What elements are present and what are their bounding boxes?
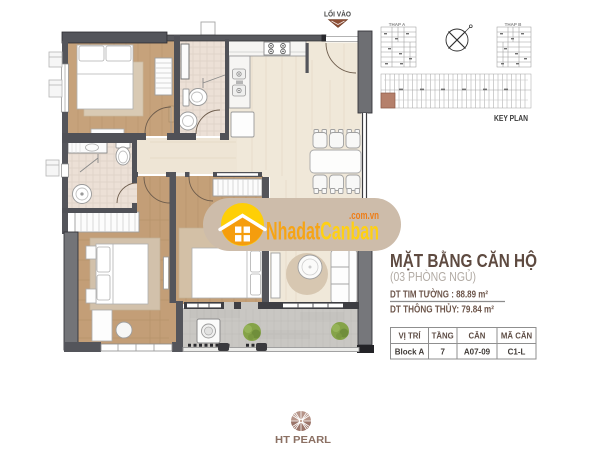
svg-text:Block A: Block A <box>395 348 425 357</box>
svg-text:C1-L: C1-L <box>508 348 526 357</box>
svg-text:CĂN: CĂN <box>469 332 486 341</box>
svg-text:A07-09: A07-09 <box>464 348 491 357</box>
svg-text:VỊ TRÍ: VỊ TRÍ <box>398 332 421 341</box>
svg-text:THAP B: THAP B <box>505 22 522 27</box>
svg-text:DT THÔNG THỦY: 79.84 m²: DT THÔNG THỦY: 79.84 m² <box>390 303 495 316</box>
svg-text:HT PEARL: HT PEARL <box>275 434 332 446</box>
svg-text:.com.vn: .com.vn <box>349 210 379 222</box>
svg-text:KEY PLAN: KEY PLAN <box>494 114 528 123</box>
svg-text:DT TIM TƯỜNG : 88.89 m²: DT TIM TƯỜNG : 88.89 m² <box>390 288 489 301</box>
svg-text:THAP A: THAP A <box>389 22 406 27</box>
svg-text:(03 PHÒNG NGỦ): (03 PHÒNG NGỦ) <box>390 269 476 284</box>
svg-text:7: 7 <box>440 348 445 357</box>
svg-text:TẦNG: TẦNG <box>432 331 454 341</box>
svg-text:MẶT BẰNG CĂN HỘ: MẶT BẰNG CĂN HỘ <box>390 250 537 271</box>
svg-text:LỐI VÀO: LỐI VÀO <box>324 9 351 19</box>
svg-text:MÃ CĂN: MÃ CĂN <box>501 332 533 341</box>
